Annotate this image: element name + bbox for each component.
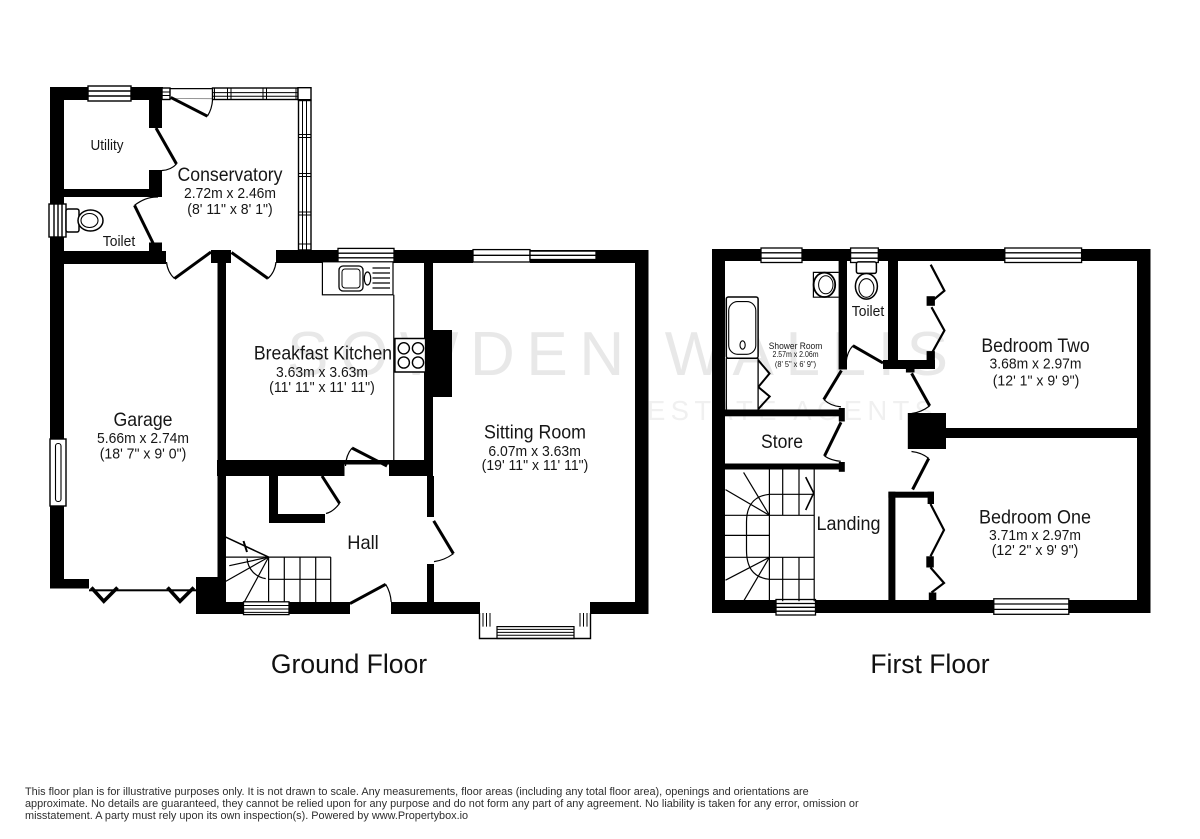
svg-text:(18' 7" x 9' 0"): (18' 7" x 9' 0") [100,446,187,463]
svg-text:Toilet: Toilet [852,304,884,320]
svg-text:Breakfast Kitchen: Breakfast Kitchen [254,343,392,365]
svg-text:First Floor: First Floor [870,649,989,679]
svg-text:2.72m x 2.46m: 2.72m x 2.46m [184,185,276,202]
svg-text:5.66m x 2.74m: 5.66m x 2.74m [97,430,189,447]
svg-text:Garage: Garage [114,409,173,431]
svg-text:Bedroom One: Bedroom One [979,507,1091,529]
svg-text:Utility: Utility [91,138,125,154]
svg-text:Landing: Landing [817,513,881,535]
svg-text:Toilet: Toilet [103,234,135,250]
svg-text:Bedroom Two: Bedroom Two [981,335,1089,357]
svg-text:(19' 11" x 11' 11"): (19' 11" x 11' 11") [482,457,589,474]
svg-text:This floor plan is for illustr: This floor plan is for illustrative purp… [25,786,809,798]
svg-text:Conservatory: Conservatory [178,164,283,186]
svg-text:(12' 1" x 9' 9"): (12' 1" x 9' 9") [993,373,1080,390]
svg-text:(8' 11" x 8' 1"): (8' 11" x 8' 1") [187,201,272,218]
svg-text:(12' 2" x 9' 9"): (12' 2" x 9' 9") [992,542,1079,559]
svg-text:(8' 5" x 6' 9"): (8' 5" x 6' 9") [775,360,817,369]
svg-text:3.68m x 2.97m: 3.68m x 2.97m [990,356,1082,373]
svg-text:Hall: Hall [347,532,379,554]
svg-text:misstatement. A party must rel: misstatement. A party must rely upon its… [25,810,468,822]
svg-text:Store: Store [761,431,803,453]
svg-text:(11' 11" x 11' 11"): (11' 11" x 11' 11") [269,379,375,396]
svg-text:Ground Floor: Ground Floor [271,649,427,679]
svg-text:approximate. No details are gu: approximate. No details are guaranteed, … [25,798,859,810]
svg-text:Sitting Room: Sitting Room [484,421,586,443]
svg-text:2.57m x 2.06m: 2.57m x 2.06m [773,350,819,359]
